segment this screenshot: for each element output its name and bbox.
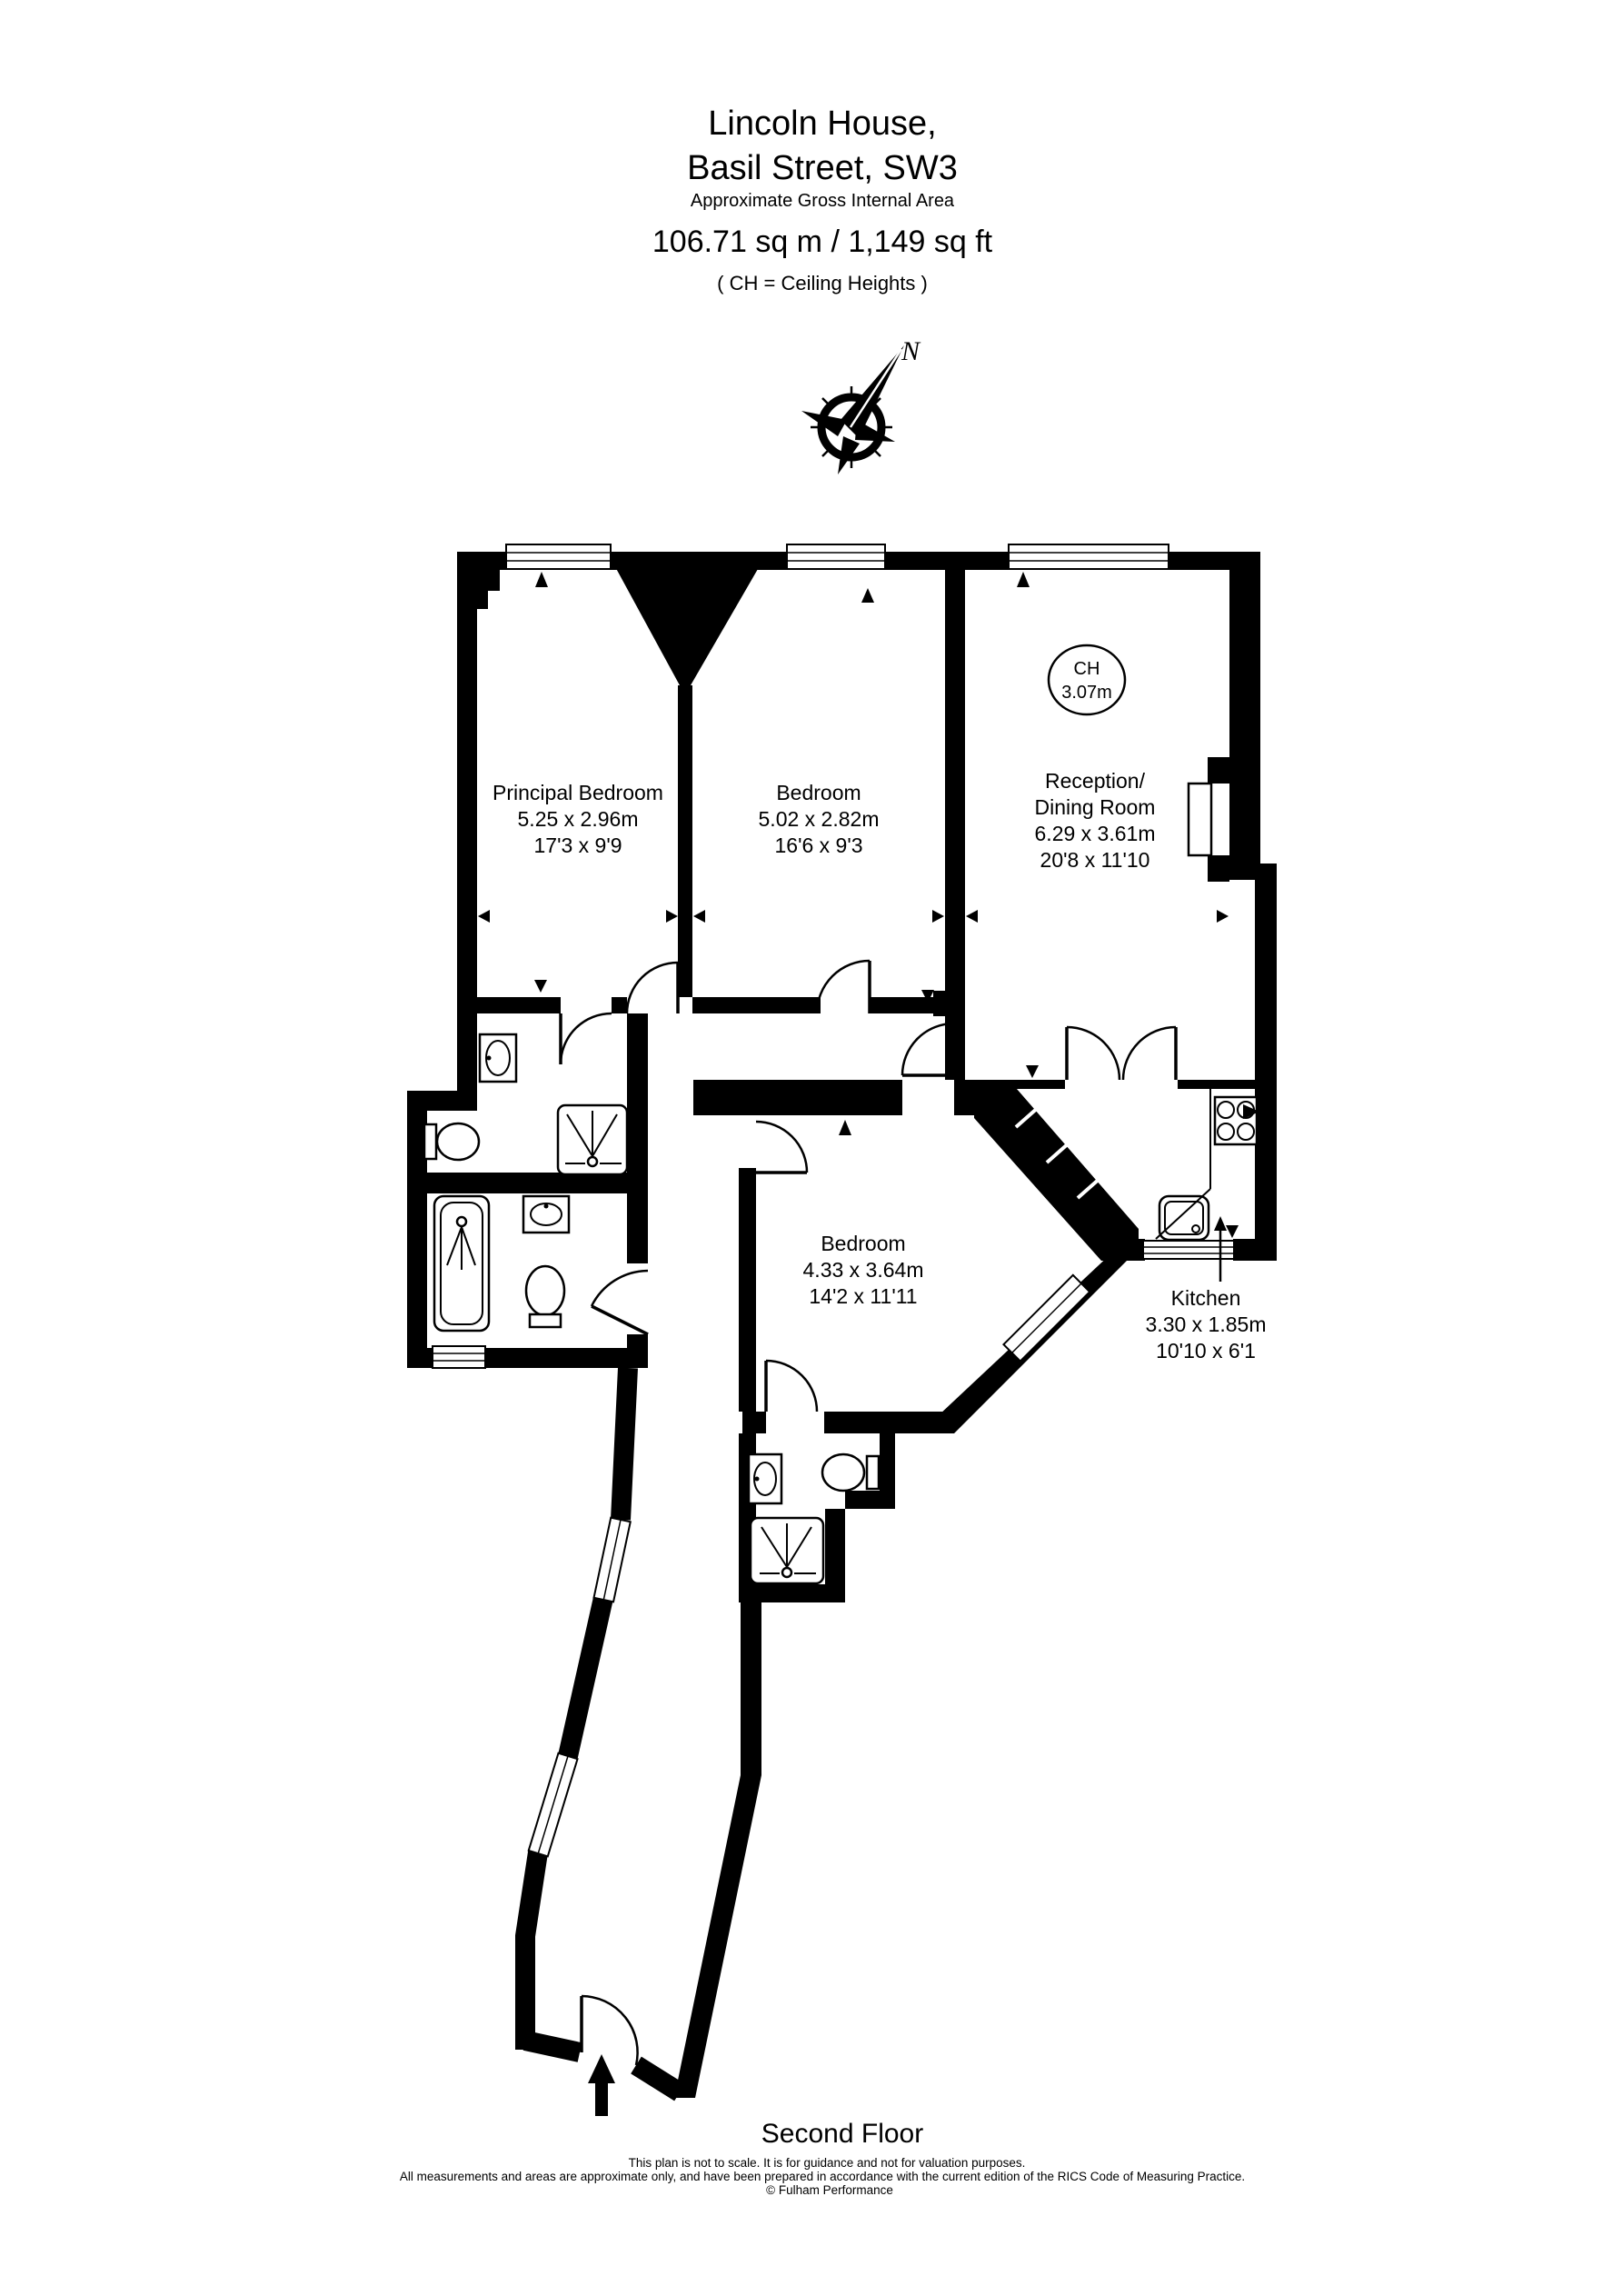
bedroom3-metric: 4.33 x 3.64m xyxy=(803,1258,924,1282)
principal-bedroom-metric: 5.25 x 2.96m xyxy=(518,807,639,831)
toilet-icon xyxy=(822,1454,864,1491)
dim-arrow-icon xyxy=(478,910,490,923)
cill-arrow-icon xyxy=(535,572,548,587)
floor-label: Second Floor xyxy=(761,2119,923,2149)
window-corridor-upper xyxy=(594,1518,631,1602)
toilet-icon xyxy=(526,1266,564,1315)
door-arc-bathroom xyxy=(592,1271,648,1306)
kitchen-metric: 3.30 x 1.85m xyxy=(1146,1313,1267,1336)
page-title-line2: Basil Street, SW3 xyxy=(687,149,958,187)
ceiling-height-badge xyxy=(1049,645,1125,714)
cill-arrow-icon xyxy=(1017,572,1030,587)
ceiling-height-value: 3.07m xyxy=(1061,683,1112,703)
bedroom2-name: Bedroom xyxy=(776,781,861,804)
principal-bedroom-name: Principal Bedroom xyxy=(493,781,663,804)
disclaimer-line1: This plan is not to scale. It is for gui… xyxy=(629,2156,1026,2170)
door-arc-principal-bedroom xyxy=(627,963,678,1013)
cill-arrow-icon xyxy=(861,588,874,603)
reception-name-line1: Reception/ xyxy=(1045,769,1146,793)
reception-metric: 6.29 x 3.61m xyxy=(1035,822,1156,845)
entry-arrow-stem xyxy=(595,2083,608,2116)
dim-arrow-icon xyxy=(693,910,705,923)
door-arc-bedroom3 xyxy=(756,1122,807,1173)
cill-arrow-icon xyxy=(1226,1225,1239,1238)
window-reception xyxy=(1009,544,1169,569)
doors xyxy=(561,961,1176,2065)
reception-recess xyxy=(1189,784,1211,855)
dim-arrow-icon xyxy=(1217,910,1229,923)
header-ch-note: ( CH = Ceiling Heights ) xyxy=(717,272,928,294)
door-arc-reception-right xyxy=(1123,1027,1176,1080)
door-arc-ensuite xyxy=(766,1361,817,1412)
window-bathroom xyxy=(433,1346,485,1368)
cill-arrow-icon xyxy=(839,1120,851,1135)
toilet-cistern-icon xyxy=(424,1124,436,1159)
reception-imperial: 20'8 x 11'10 xyxy=(1040,848,1150,872)
header-area: 106.71 sq m / 1,149 sq ft xyxy=(652,225,993,259)
window-bedroom2 xyxy=(787,544,885,569)
door-arc-shower-room xyxy=(561,1013,612,1064)
entry-arrow-icon xyxy=(588,2054,615,2083)
compass-north-label: N xyxy=(901,336,921,366)
header-subtitle: Approximate Gross Internal Area xyxy=(691,191,955,211)
bedroom3-imperial: 14'2 x 11'11 xyxy=(809,1284,917,1308)
door-arc-reception-left xyxy=(1067,1027,1119,1080)
ceiling-height-label: CH xyxy=(1074,659,1100,679)
reception-name-line2: Dining Room xyxy=(1035,795,1156,819)
dim-arrow-icon xyxy=(966,910,978,923)
floorplan-page: Lincoln House, Basil Street, SW3 Approxi… xyxy=(0,0,1622,2296)
footer: Second Floor This plan is not to scale. … xyxy=(400,2119,1245,2197)
kitchen-leader-arrow-icon xyxy=(1214,1216,1227,1231)
window-bedroom3-angled xyxy=(1003,1275,1090,1362)
compass-rose-icon: N xyxy=(801,336,921,474)
disclaimer-line2: All measurements and areas are approxima… xyxy=(400,2170,1245,2183)
kitchen-name: Kitchen xyxy=(1171,1286,1241,1310)
page-title-line1: Lincoln House, xyxy=(708,105,936,143)
dim-arrow-icon xyxy=(666,910,678,923)
bedroom2-metric: 5.02 x 2.82m xyxy=(759,807,880,831)
cill-arrow-icon xyxy=(1026,1065,1039,1078)
toilet-icon xyxy=(437,1123,479,1160)
corridor-left-wall xyxy=(525,1368,628,2050)
bedroom2-imperial: 16'6 x 9'3 xyxy=(774,834,862,857)
dim-arrow-icon xyxy=(932,910,944,923)
cill-arrow-icon xyxy=(534,980,547,993)
bedroom3-name: Bedroom xyxy=(821,1232,905,1255)
kitchen-imperial: 10'10 x 6'1 xyxy=(1156,1339,1256,1363)
toilet-cistern-icon xyxy=(530,1314,561,1327)
header: Lincoln House, Basil Street, SW3 Approxi… xyxy=(652,105,993,294)
disclaimer-line3: © Fulham Performance xyxy=(766,2183,893,2197)
toilet-cistern-icon xyxy=(867,1456,879,1489)
door-arc-entrance xyxy=(582,1996,638,2065)
window-corridor-lower xyxy=(529,1753,578,1857)
door-leaf-bathroom xyxy=(592,1306,648,1334)
principal-bedroom-imperial: 17'3 x 9'9 xyxy=(533,834,622,857)
window-principal-bedroom xyxy=(506,544,611,569)
door-arc-bedroom2 xyxy=(817,961,870,1013)
